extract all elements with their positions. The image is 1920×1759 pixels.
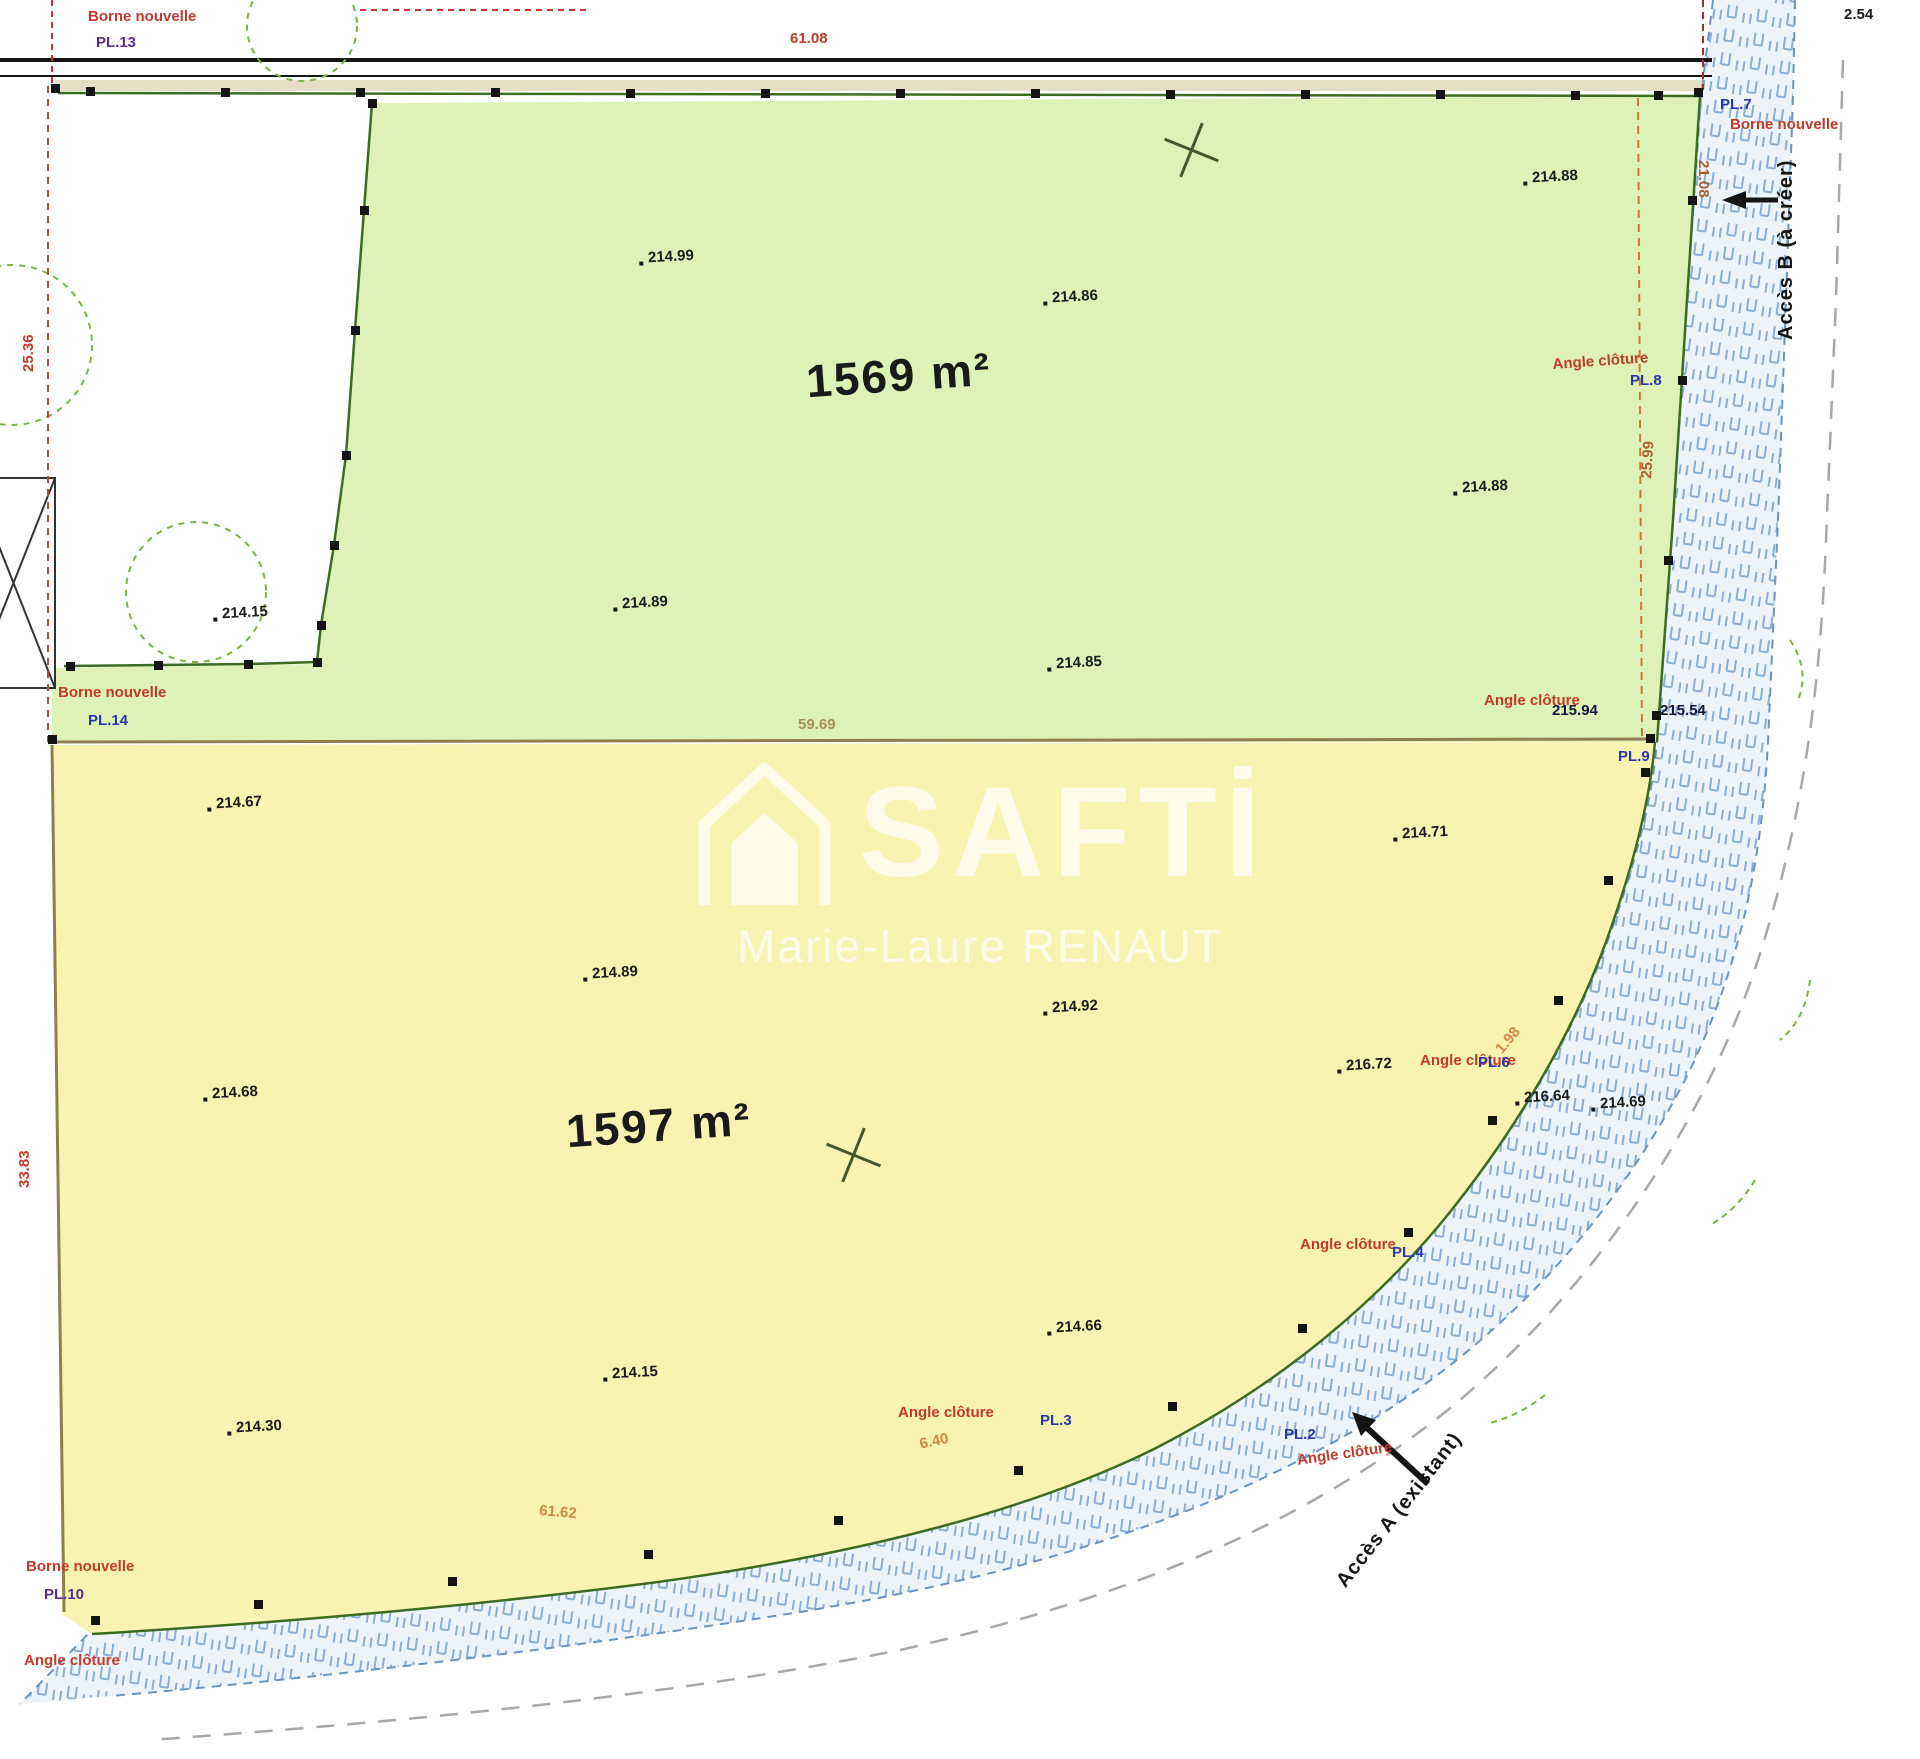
distance-measurement: 2.54 [1844, 6, 1873, 23]
boundary-marker [1298, 1324, 1307, 1333]
boundary-marker [1168, 1402, 1177, 1411]
spot-elevation: 214.89 [622, 593, 669, 612]
spot-elevation: 214.66 [1056, 1317, 1103, 1336]
boundary-marker [1404, 1228, 1413, 1237]
boundary-marker [1664, 556, 1673, 565]
spot-elevation: 214.15 [222, 603, 269, 622]
survey-marker-label: PL.9 [1618, 748, 1650, 765]
boundary-marker [221, 88, 230, 97]
boundary-marker [896, 89, 905, 98]
survey-marker-label: PL.2 [1284, 1426, 1316, 1443]
spot-elevation: 214.30 [236, 1417, 283, 1436]
survey-cross [823, 1126, 881, 1184]
boundary-marker [360, 206, 369, 215]
spot-elevation: 214.69 [1600, 1093, 1647, 1112]
boundary-marker [1654, 91, 1663, 100]
boundary-marker [154, 661, 163, 670]
boundary-marker [491, 88, 500, 97]
survey-marker-label: PL.10 [44, 1586, 84, 1603]
boundary-marker [1554, 996, 1563, 1005]
boundary-point-label: Angle clôture [1300, 1236, 1396, 1253]
boundary-marker [1678, 376, 1687, 385]
boundary-marker [51, 84, 60, 93]
spot-elevation: 214.89 [592, 963, 639, 982]
boundary-marker [626, 89, 635, 98]
boundary-marker [1014, 1466, 1023, 1475]
boundary-marker [1646, 734, 1655, 743]
boundary-point-label: Borne nouvelle [26, 1558, 134, 1575]
spot-elevation: 214.88 [1532, 167, 1579, 186]
boundary-marker [448, 1577, 457, 1586]
boundary-marker [1604, 876, 1613, 885]
point-elevation-value: 215.94 [1552, 702, 1598, 719]
survey-plan: SAFTİ Marie-Laure RENAUT 214.99214.86214… [0, 0, 1920, 1759]
survey-marker-label: PL.8 [1630, 372, 1662, 389]
boundary-marker [86, 87, 95, 96]
boundary-marker [761, 89, 770, 98]
spot-elevation: 214.85 [1056, 653, 1103, 672]
boundary-marker [1652, 711, 1661, 720]
boundary-marker [1571, 91, 1580, 100]
distance-measurement: 33.83 [16, 1150, 33, 1188]
distance-measurement: 61.08 [790, 30, 828, 47]
boundary-marker [1488, 1116, 1497, 1125]
spot-elevation: 214.15 [612, 1363, 659, 1382]
boundary-marker [368, 99, 377, 108]
boundary-marker [91, 1616, 100, 1625]
survey-cross [1161, 121, 1219, 179]
distance-measurement: 59.69 [798, 716, 836, 733]
boundary-marker [644, 1550, 653, 1559]
distance-measurement: 21.08 [1695, 160, 1712, 198]
spot-elevation: 216.64 [1524, 1087, 1571, 1106]
survey-marker-label: PL.13 [96, 34, 136, 51]
boundary-marker [351, 326, 360, 335]
boundary-marker [356, 88, 365, 97]
distance-measurement: 25.36 [20, 334, 37, 372]
spot-elevation: 214.92 [1052, 997, 1099, 1016]
spot-elevation: 214.67 [216, 793, 263, 812]
distance-measurement: 25.99 [1638, 441, 1658, 480]
boundary-marker [342, 451, 351, 460]
boundary-marker [66, 662, 75, 671]
access-label: Accès B (à créer) [1775, 160, 1798, 340]
site-plan-drawing [0, 0, 1920, 1759]
boundary-marker [1031, 89, 1040, 98]
boundary-marker [1688, 196, 1697, 205]
survey-marker-label: PL.4 [1392, 1244, 1424, 1261]
survey-marker-label: PL.14 [88, 712, 128, 729]
spot-elevation: 214.68 [212, 1083, 259, 1102]
spot-elevation: 214.71 [1402, 823, 1449, 842]
boundary-point-label: Borne nouvelle [88, 8, 196, 25]
spot-elevation: 214.99 [648, 247, 695, 266]
spot-elevation: 216.72 [1346, 1055, 1393, 1074]
spot-elevation: 214.88 [1462, 477, 1509, 496]
distance-measurement: 61.62 [539, 1502, 578, 1522]
boundary-marker [1641, 768, 1650, 777]
survey-marker-label: PL.3 [1040, 1412, 1072, 1429]
boundary-marker [317, 621, 326, 630]
boundary-marker [244, 660, 253, 669]
boundary-marker [834, 1516, 843, 1525]
boundary-marker [1436, 90, 1445, 99]
boundary-point-label: Borne nouvelle [1730, 116, 1838, 133]
boundary-marker [1166, 90, 1175, 99]
boundary-point-label: Borne nouvelle [58, 684, 166, 701]
parcel-green [52, 96, 1701, 742]
point-elevation-value: 215.54 [1660, 702, 1706, 719]
boundary-point-label: Angle clôture [898, 1404, 994, 1421]
boundary-marker [254, 1600, 263, 1609]
spot-elevation: 214.86 [1052, 287, 1099, 306]
boundary-marker [48, 735, 57, 744]
boundary-point-label: Angle clôture [24, 1652, 120, 1669]
boundary-marker [330, 541, 339, 550]
building-footprint [0, 478, 55, 688]
survey-marker-label: PL.7 [1720, 96, 1752, 113]
boundary-marker [1694, 88, 1703, 97]
boundary-marker [313, 658, 322, 667]
boundary-marker [1301, 90, 1310, 99]
